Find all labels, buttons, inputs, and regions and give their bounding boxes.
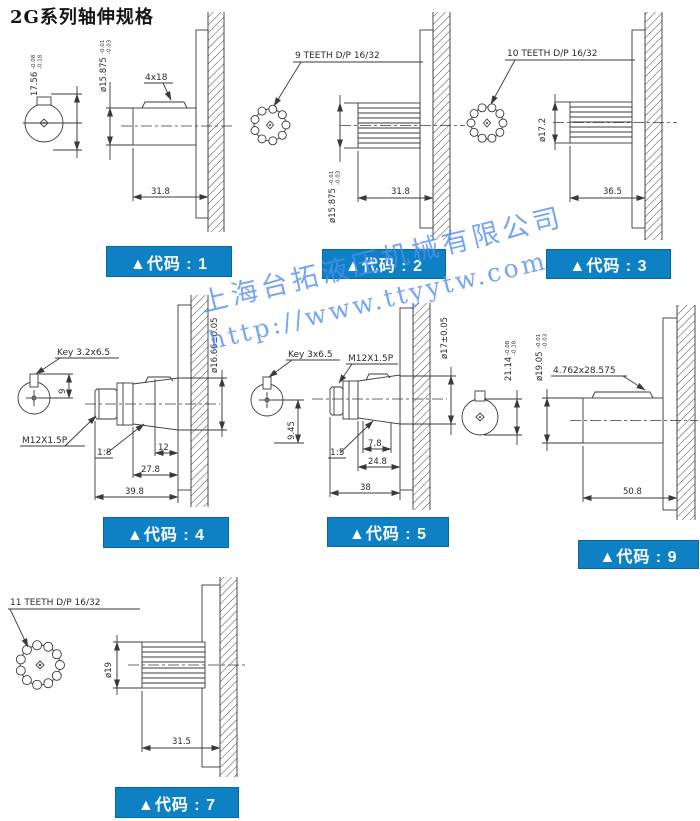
wall-hatch xyxy=(645,12,662,240)
dim-diameter: ø15.875 -0.01 -0.03 xyxy=(328,95,358,223)
flat-tol-dn: -0.18 xyxy=(38,54,44,69)
wall-hatch xyxy=(677,305,695,520)
thread-callout: M12X1.5P xyxy=(20,416,96,446)
spline-end-view xyxy=(467,104,507,142)
drawing-code-9: 21.14 -0.08 -0.18 ø19.05 -0.01 -0.03 4.7… xyxy=(440,295,700,540)
shaft-end-view xyxy=(23,97,82,142)
drawing-code-7: 11 TEETH D/P 16/32 ø19 31.5 xyxy=(0,575,285,790)
dim-diameter: ø19.05 -0.01 -0.03 xyxy=(535,333,583,451)
dim-key-offset: 9.45 xyxy=(274,400,304,443)
flat-tol-up: -0.08 xyxy=(31,54,37,69)
key-strip xyxy=(592,392,653,398)
dim-a: 7.8 xyxy=(363,421,391,453)
length-dim-text: 36.5 xyxy=(603,187,622,197)
dia-dim-text: ø16.66±0.05 xyxy=(210,317,220,373)
dia-tol-up: -0.01 xyxy=(536,334,542,348)
length-dim-text: 31.5 xyxy=(172,737,191,747)
mount-plate xyxy=(178,305,191,490)
dim-c-text: 38 xyxy=(360,483,371,493)
dia-tol-up: -0.01 xyxy=(100,40,106,54)
code-badge-4: ▲代码 : 4 xyxy=(103,517,229,548)
dim-a-text: 12 xyxy=(158,443,169,453)
code-badge-7: ▲代码 : 7 xyxy=(115,787,239,818)
wall-hatch xyxy=(208,12,224,232)
taper-callout: 1:5 xyxy=(328,421,373,458)
teeth-callout: 10 TEETH D/P 16/32 xyxy=(491,49,635,104)
key-callout: Key 3.2x6.5 xyxy=(36,348,119,374)
teeth-label: 11 TEETH D/P 16/32 xyxy=(10,598,101,608)
thread-label: M12X1.5P xyxy=(22,436,68,446)
dim-diameter: ø17.2 xyxy=(538,94,570,150)
code-badge-2: ▲代码 : 2 xyxy=(322,249,446,279)
shaft-side-view xyxy=(133,102,196,145)
dim-c-text: 39.8 xyxy=(125,487,144,497)
drawing-code-5: 9.45 Key 3x6.5 M12X1.5P ø17±0. xyxy=(240,295,470,515)
flat-dim-text: 17.56 xyxy=(30,72,40,96)
dia-dim-text: ø19.05 xyxy=(535,351,545,381)
length-dim-text: 31.8 xyxy=(391,187,410,197)
key-label: Key 3x6.5 xyxy=(288,350,333,360)
key-offset-text: 9.45 xyxy=(287,421,297,440)
taper-body xyxy=(358,375,400,424)
dia-dim-text: ø15.875 xyxy=(328,188,338,223)
dia-tol-dn: -0.03 xyxy=(107,39,113,54)
taper-label: 1:5 xyxy=(330,448,344,458)
drawing-code-1: 17.56 -0.08 -0.18 ø15.875 -0.01 -0.03 4x… xyxy=(5,10,240,245)
dim-diameter: ø15.875 -0.01 -0.03 xyxy=(99,39,133,160)
drawing-code-4: 9 Key 3.2x6.5 ø16.66±0.05 M12X1.5P xyxy=(5,285,240,520)
teeth-label: 10 TEETH D/P 16/32 xyxy=(507,49,598,59)
teeth-label: 9 TEETH D/P 16/32 xyxy=(295,51,380,61)
flat-tol-dn: -0.18 xyxy=(512,340,518,355)
flat-tol-up: -0.08 xyxy=(505,340,511,355)
key-callout: Key 3x6.5 xyxy=(269,350,340,377)
key-label: Key 3.2x6.5 xyxy=(57,348,110,358)
shaft-end-view xyxy=(462,391,522,435)
teeth-callout: 11 TEETH D/P 16/32 xyxy=(8,598,140,647)
key-callout: 4x18 xyxy=(144,73,173,100)
taper-label: 1:8 xyxy=(97,448,112,458)
shaft-side-view xyxy=(583,392,663,443)
dia-dim-text: ø15.875 xyxy=(99,57,109,92)
wall-hatch xyxy=(413,303,430,510)
dia-dim-text: ø19 xyxy=(104,662,114,678)
key-label: 4x18 xyxy=(145,73,168,83)
dim-flat-height: 21.14 -0.08 -0.18 xyxy=(504,340,518,445)
keyway-notch xyxy=(37,97,51,105)
spline-end-view xyxy=(251,105,290,145)
flat-dim-text: 21.14 xyxy=(504,357,514,381)
key-label: 4.762x28.575 xyxy=(553,366,616,376)
taper-shaft-side-view xyxy=(95,377,178,430)
dim-b-text: 24.8 xyxy=(368,457,387,467)
page: 2G系列轴伸规格 17.56 -0.08 xyxy=(0,0,700,821)
length-dim-text: 31.8 xyxy=(151,187,170,197)
wall-hatch xyxy=(433,12,450,240)
key-offset-text: 9 xyxy=(58,389,68,394)
dim-b: 27.8 xyxy=(133,427,178,478)
teeth-callout: 9 TEETH D/P 16/32 xyxy=(274,51,423,106)
dim-c: 39.8 xyxy=(95,421,178,500)
key-strip xyxy=(142,102,187,108)
dim-a-text: 7.8 xyxy=(368,439,382,449)
keyway-slot xyxy=(263,377,271,389)
dim-flat-height: 17.56 -0.08 -0.18 xyxy=(30,54,82,158)
dia-tol-dn: -0.03 xyxy=(543,333,549,348)
shaft-end-view xyxy=(251,377,304,416)
thread-stub xyxy=(330,387,343,415)
length-dim-text: 50.8 xyxy=(623,487,642,497)
mount-plate xyxy=(663,318,677,510)
dia-dim-text: ø17.2 xyxy=(538,118,548,142)
wall-hatch xyxy=(191,295,208,507)
dia-tol-up: -0.01 xyxy=(329,171,335,185)
wall-hatch xyxy=(220,577,237,777)
code-badge-5: ▲代码 : 5 xyxy=(327,517,449,547)
code-badge-9: ▲代码 : 9 xyxy=(578,540,699,569)
thread-label: M12X1.5P xyxy=(348,354,394,364)
nut-collar xyxy=(343,381,358,419)
drawing-code-2: 9 TEETH D/P 16/32 ø15.875 -0.01 -0.03 31… xyxy=(245,10,470,245)
drawing-code-3: 10 TEETH D/P 16/32 ø17.2 36.5 xyxy=(455,10,700,245)
keyway-slot xyxy=(30,374,38,387)
mount-plate xyxy=(196,30,208,218)
spline-end-view xyxy=(16,641,64,690)
keyway-notch xyxy=(475,391,485,401)
key-callout: 4.762x28.575 xyxy=(551,366,645,390)
taper-callout: 1:8 xyxy=(95,424,144,458)
code-badge-1: ▲代码 : 1 xyxy=(106,246,232,277)
dia-tol-dn: -0.03 xyxy=(336,170,342,185)
code-badge-3: ▲代码 : 3 xyxy=(546,249,671,279)
dim-b-text: 27.8 xyxy=(141,465,160,475)
